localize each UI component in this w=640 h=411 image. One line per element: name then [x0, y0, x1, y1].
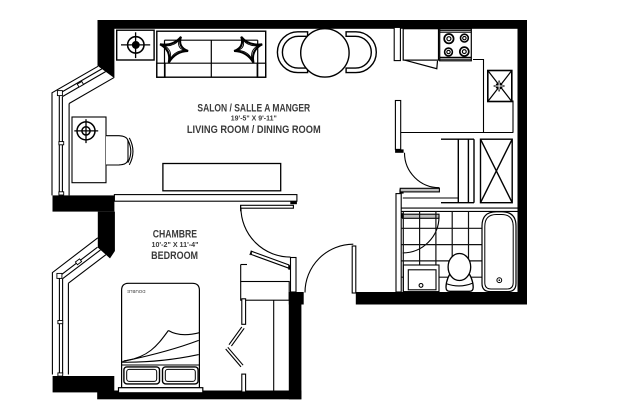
svg-text:19'-5" X 9'-11": 19'-5" X 9'-11"	[231, 115, 277, 122]
svg-text:CHAMBRE: CHAMBRE	[153, 229, 197, 241]
svg-text:DOUBLE: DOUBLE	[127, 289, 146, 294]
svg-text:LIVING ROOM / DINING ROOM: LIVING ROOM / DINING ROOM	[187, 124, 321, 136]
svg-text:10'-2" X 11'-4": 10'-2" X 11'-4"	[152, 242, 199, 249]
svg-text:SALON / SALLE A MANGER: SALON / SALLE A MANGER	[197, 103, 310, 115]
svg-text:BEDROOM: BEDROOM	[151, 250, 198, 262]
